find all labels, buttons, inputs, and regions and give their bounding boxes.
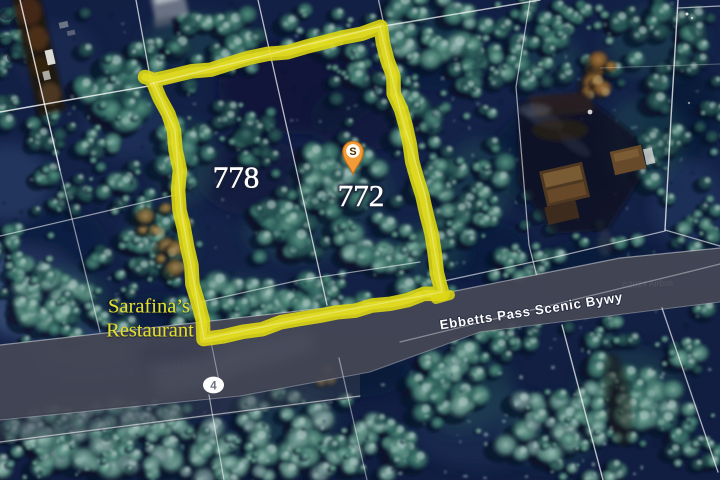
- svg-text:Restaurant: Restaurant: [106, 320, 194, 342]
- svg-text:772: 772: [338, 178, 385, 213]
- svg-text:778: 778: [213, 160, 260, 195]
- svg-text:S: S: [349, 146, 356, 158]
- svg-text:4: 4: [210, 380, 217, 392]
- svg-text:Sarafina’s: Sarafina’s: [108, 296, 190, 318]
